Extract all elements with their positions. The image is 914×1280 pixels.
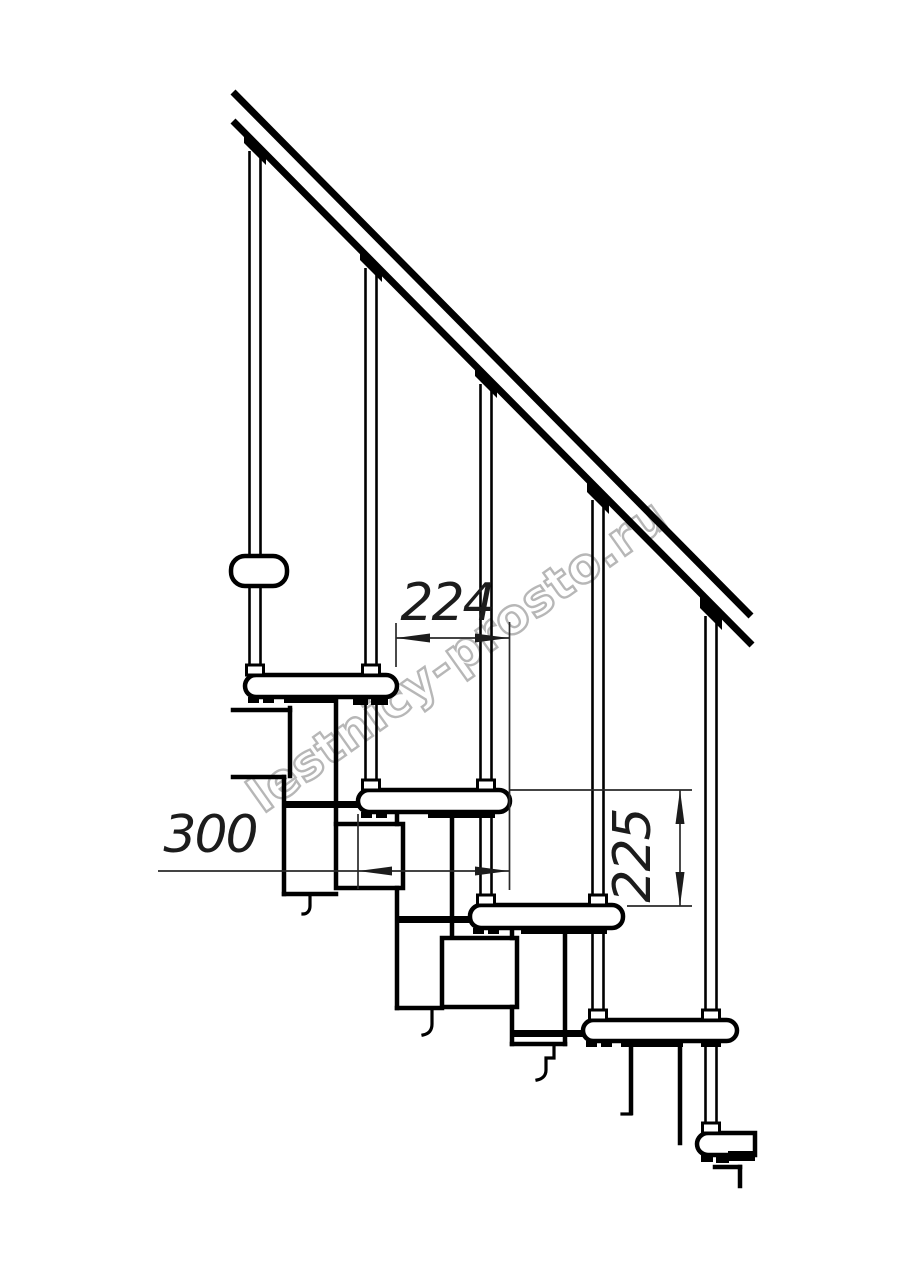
tread-2: [358, 790, 510, 812]
collar: [363, 780, 380, 790]
module-box-2: [442, 938, 517, 1007]
tread-3: [470, 905, 623, 928]
module-box-1: [336, 824, 403, 888]
tread-1: [245, 675, 397, 697]
connector-bar: [397, 916, 470, 923]
collar: [478, 780, 495, 790]
collar: [590, 1010, 607, 1020]
collar: [703, 1123, 720, 1133]
collar: [478, 895, 495, 905]
dimension-label-run: 224: [400, 573, 493, 633]
dimension-label-rise: 225: [603, 809, 663, 902]
tread-4: [583, 1020, 737, 1041]
connector-bar: [285, 801, 358, 808]
dimension-label-depth: 300: [163, 805, 256, 865]
staircase-drawing-svg: lestnicy-prosto.ru: [0, 0, 914, 1280]
collar: [247, 665, 264, 675]
collar: [703, 1010, 720, 1020]
technical-drawing: lestnicy-prosto.ru: [0, 0, 914, 1280]
collar: [363, 665, 380, 675]
connector-bar: [512, 1030, 583, 1037]
lower-rail-bracket: [231, 556, 287, 586]
